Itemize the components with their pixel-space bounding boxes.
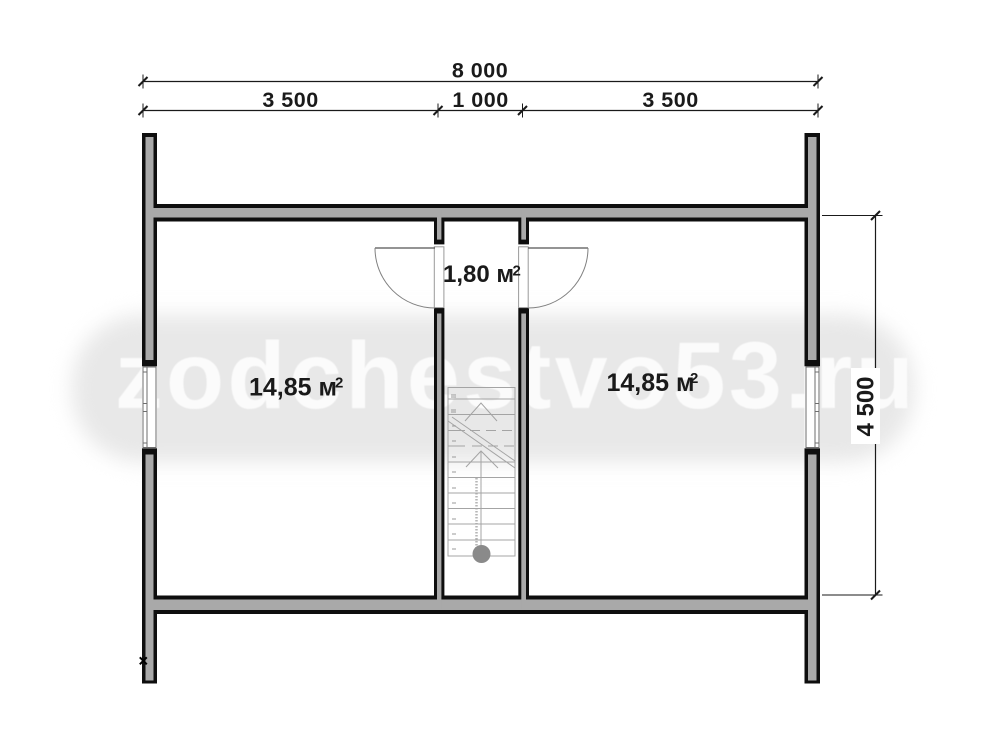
svg-text:4 500: 4 500 [853,376,880,436]
svg-text:3 500: 3 500 [642,88,698,112]
svg-text:2: 2 [513,263,521,280]
svg-text:1 000: 1 000 [452,88,508,112]
svg-text:2: 2 [335,375,343,392]
svg-text:1,80 м: 1,80 м [443,261,514,288]
svg-text:3 500: 3 500 [262,88,318,112]
svg-text:8 000: 8 000 [452,59,508,83]
svg-text:2: 2 [690,370,698,387]
svg-text:14,85 м: 14,85 м [249,374,337,402]
svg-text:14,85 м: 14,85 м [607,369,695,397]
